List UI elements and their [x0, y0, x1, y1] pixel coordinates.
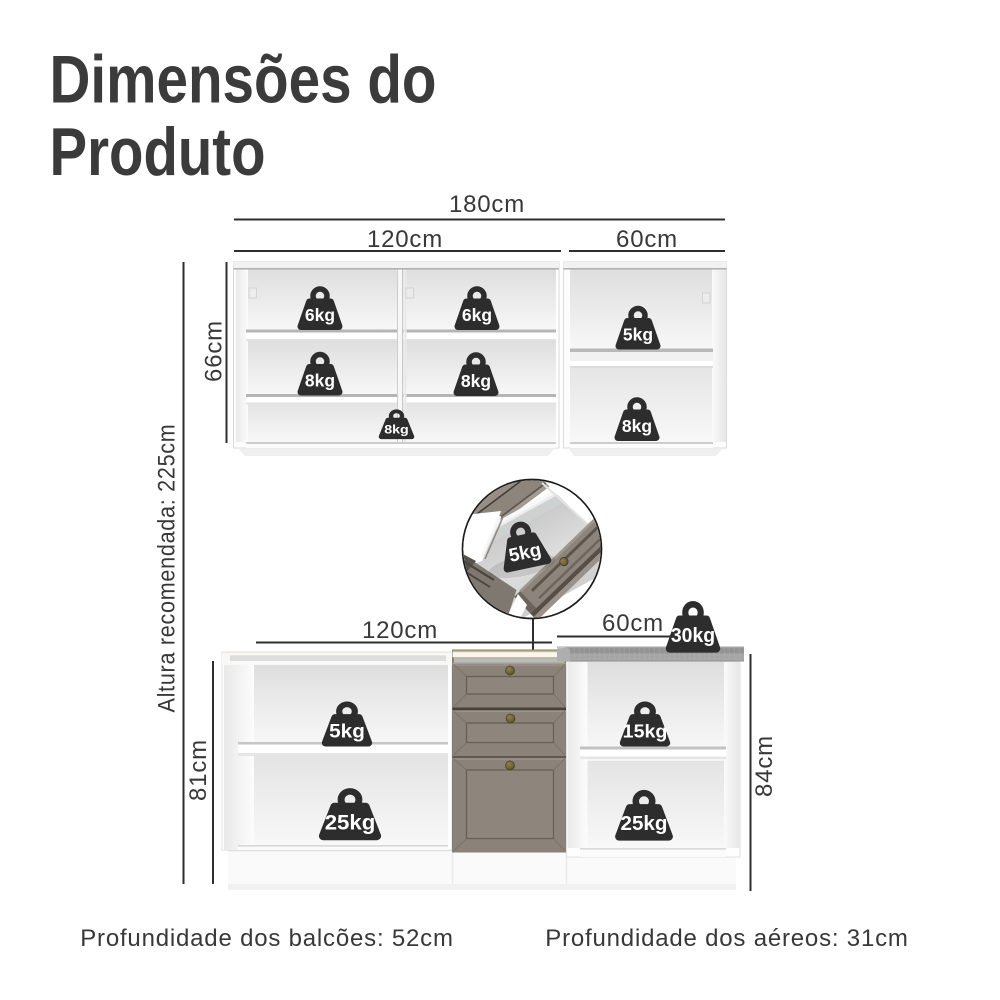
- svg-text:25kg: 25kg: [620, 812, 667, 835]
- svg-text:Dimensões do: Dimensões do: [50, 42, 437, 118]
- svg-text:180cm: 180cm: [449, 191, 525, 218]
- svg-text:15kg: 15kg: [623, 721, 668, 741]
- svg-text:Altura recomendada: 225cm: Altura recomendada: 225cm: [154, 424, 181, 713]
- svg-text:30kg: 30kg: [671, 625, 715, 648]
- svg-text:6kg: 6kg: [305, 305, 335, 325]
- svg-text:25kg: 25kg: [325, 811, 376, 834]
- svg-text:81cm: 81cm: [185, 739, 212, 801]
- svg-text:8kg: 8kg: [305, 371, 335, 391]
- svg-text:8kg: 8kg: [384, 422, 408, 436]
- svg-text:8kg: 8kg: [461, 371, 491, 391]
- svg-text:60cm: 60cm: [602, 610, 664, 637]
- svg-text:60cm: 60cm: [616, 226, 678, 253]
- svg-text:5kg: 5kg: [329, 721, 365, 742]
- svg-text:Profundidade dos aéreos: 31cm: Profundidade dos aéreos: 31cm: [545, 925, 908, 952]
- svg-text:84cm: 84cm: [751, 735, 778, 797]
- svg-text:66cm: 66cm: [201, 320, 228, 382]
- svg-text:120cm: 120cm: [362, 617, 438, 644]
- svg-text:Profundidade dos balcões: 52cm: Profundidade dos balcões: 52cm: [80, 925, 454, 952]
- svg-text:120cm: 120cm: [367, 226, 443, 253]
- svg-text:6kg: 6kg: [462, 305, 492, 325]
- svg-text:Produto: Produto: [50, 114, 266, 190]
- svg-text:5kg: 5kg: [623, 325, 653, 345]
- svg-text:8kg: 8kg: [622, 416, 652, 436]
